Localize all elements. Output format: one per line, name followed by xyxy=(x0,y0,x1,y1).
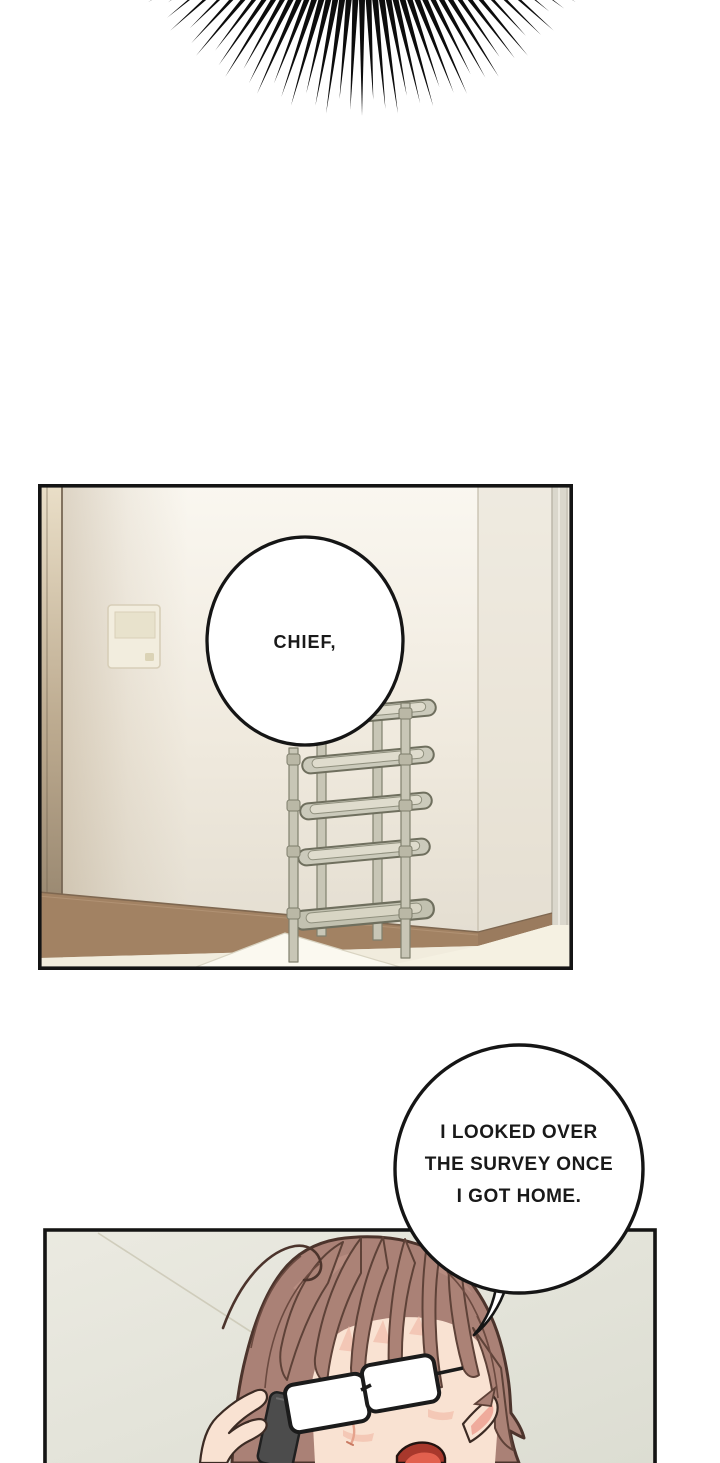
speed-line-spike xyxy=(350,0,360,110)
speech-bubble-chief: CHIEF, xyxy=(200,530,410,754)
speech-bubble-survey: I LOOKED OVER THE SURVEY ONCE I GOT HOME… xyxy=(380,1030,670,1350)
bubble-text: CHIEF, xyxy=(273,632,336,652)
speed-line-spike xyxy=(215,0,293,50)
bubble-text-line: I LOOKED OVER xyxy=(440,1122,597,1143)
door-frame-right xyxy=(552,484,568,962)
speed-line-spike xyxy=(458,0,576,2)
bubble-text-line: I GOT HOME. xyxy=(457,1186,582,1207)
bubble-text-line: THE SURVEY ONCE xyxy=(425,1154,613,1175)
wall-intercom-panel xyxy=(108,605,160,668)
speed-line-spike xyxy=(364,0,373,100)
speed-lines-burst xyxy=(0,0,720,130)
glasses-right-lens xyxy=(361,1354,441,1413)
speed-line-spike xyxy=(358,0,365,116)
speed-line-spike xyxy=(148,0,266,2)
